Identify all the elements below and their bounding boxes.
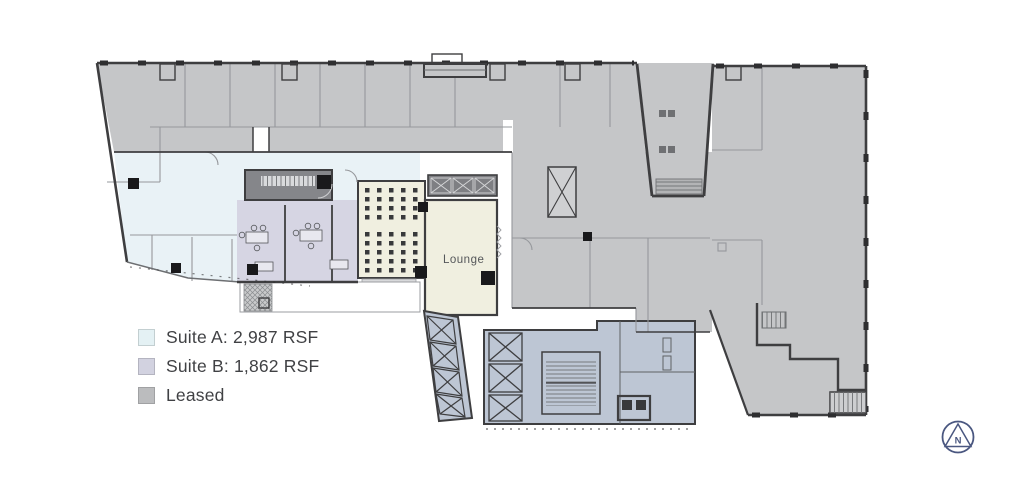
legend-label-leased: Leased bbox=[166, 385, 225, 406]
legend-swatch-leased bbox=[138, 387, 155, 404]
legend-swatch-suite-a bbox=[138, 329, 155, 346]
north-indicator: N bbox=[943, 422, 974, 453]
legend-item-suite-b: Suite B: 1,862 RSF bbox=[138, 352, 319, 381]
legend: Suite A: 2,987 RSF Suite B: 1,862 RSF Le… bbox=[138, 323, 319, 410]
light-well-notch bbox=[253, 127, 269, 153]
legend-item-leased: Leased bbox=[138, 381, 319, 410]
legend-swatch-suite-b bbox=[138, 358, 155, 375]
legend-label-suite-a: Suite A: 2,987 RSF bbox=[166, 327, 318, 348]
legend-item-suite-a: Suite A: 2,987 RSF bbox=[138, 323, 319, 352]
lounge-label: Lounge bbox=[443, 254, 484, 266]
region-core bbox=[484, 321, 695, 424]
floor-plan-page: Lounge bbox=[0, 0, 1024, 504]
elevator-strip bbox=[424, 311, 472, 421]
stair-right-small bbox=[762, 312, 786, 328]
entry-vestibule bbox=[424, 54, 486, 77]
light-well-notch-2 bbox=[503, 120, 513, 153]
north-label: N bbox=[955, 436, 962, 447]
service-shafts bbox=[428, 175, 497, 196]
stair-bottom-right bbox=[830, 392, 866, 413]
floor-plan: Lounge bbox=[0, 0, 1024, 504]
terrace-strip bbox=[240, 282, 420, 312]
elevator-center bbox=[548, 167, 576, 217]
legend-label-suite-b: Suite B: 1,862 RSF bbox=[166, 356, 319, 377]
